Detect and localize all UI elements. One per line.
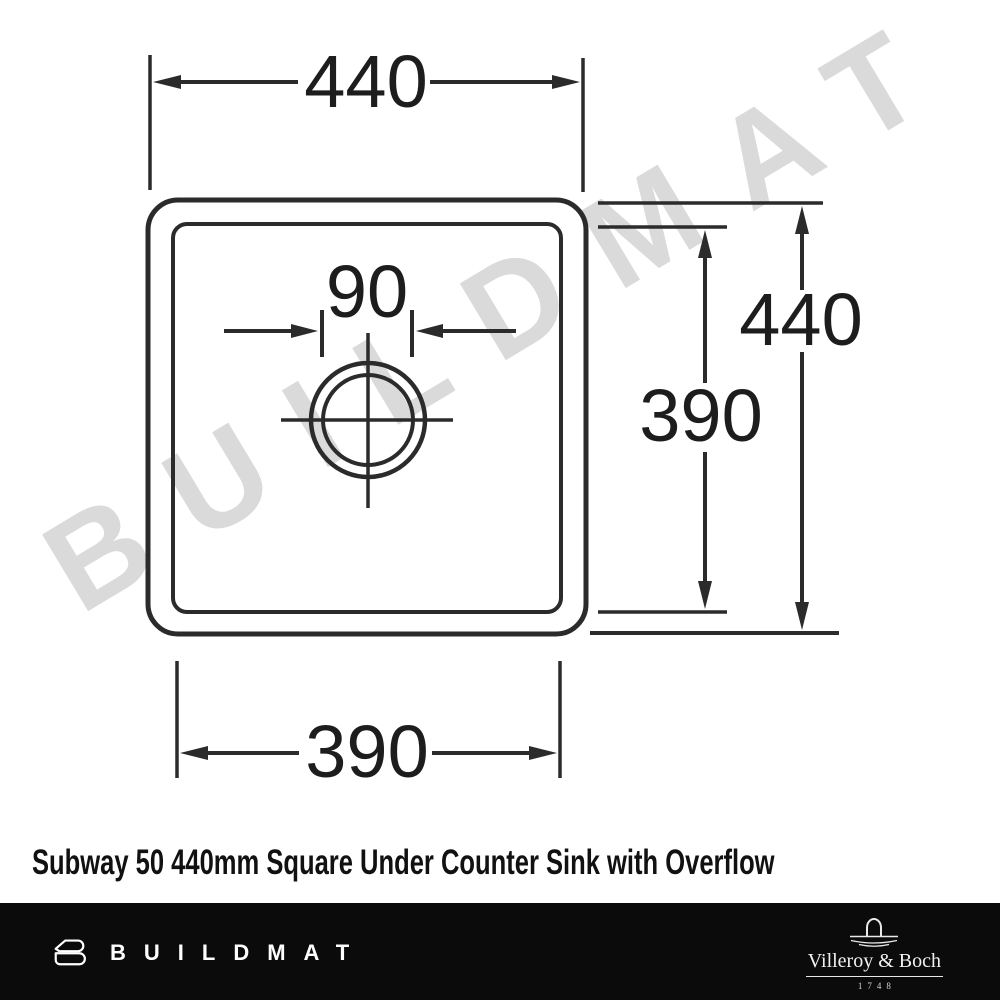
dim-height-arrow-up	[795, 206, 809, 234]
dim-bottom-arrow-left	[180, 746, 208, 760]
dim-label-bowl-width: 390	[305, 715, 428, 789]
dim-height-arrow-down	[795, 602, 809, 630]
product-title: Subway 50 440mm Square Under Counter Sin…	[32, 844, 775, 882]
product-diagram-page: BUILDMAT	[0, 0, 1000, 1000]
sink-technical-drawing	[0, 0, 1000, 900]
dim-top-arrow-right	[552, 75, 580, 89]
buildmat-logo-icon	[52, 936, 94, 968]
buildmat-brand-text: BUILDMAT	[110, 938, 367, 966]
footer-bar: BUILDMAT Villeroy & Boch 1748	[0, 903, 1000, 1000]
dim-label-drain-diameter: 90	[326, 255, 408, 329]
dim-label-bowl-height: 390	[639, 379, 762, 453]
dim-drain-arrow-left	[291, 324, 318, 338]
buildmat-brand: BUILDMAT	[52, 936, 367, 968]
dim-bottom-arrow-right	[529, 746, 557, 760]
dim-bowl-arrow-up	[698, 230, 712, 258]
villeroy-boch-year: 1748	[853, 981, 896, 991]
dim-label-overall-height: 440	[739, 283, 862, 357]
dim-top-arrow-left	[153, 75, 181, 89]
villeroy-boch-name: Villeroy & Boch	[806, 949, 943, 977]
dim-drain-arrow-right	[416, 324, 443, 338]
dim-bowl-arrow-down	[698, 581, 712, 609]
villeroy-boch-fountain-icon	[839, 916, 909, 948]
dim-label-overall-width: 440	[304, 45, 427, 119]
villeroy-boch-logo: Villeroy & Boch 1748	[806, 916, 943, 991]
